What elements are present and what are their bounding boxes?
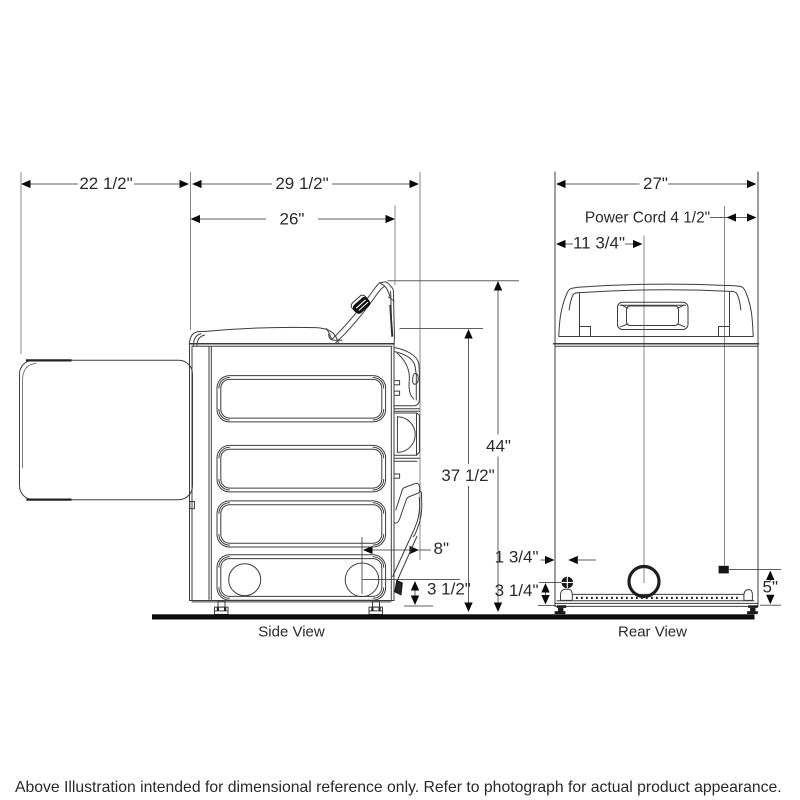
svg-text:1 3/4": 1 3/4": [495, 548, 539, 567]
svg-text:22 1/2": 22 1/2": [79, 174, 132, 193]
svg-text:Power Cord 4 1/2": Power Cord 4 1/2": [585, 210, 710, 227]
svg-text:Rear View: Rear View: [618, 624, 687, 641]
svg-text:8": 8": [434, 539, 450, 558]
svg-text:3 1/2": 3 1/2": [427, 580, 471, 599]
svg-text:37 1/2": 37 1/2": [441, 466, 494, 485]
svg-text:44": 44": [486, 437, 511, 456]
svg-text:Side View: Side View: [258, 624, 325, 641]
svg-text:29 1/2": 29 1/2": [275, 174, 328, 193]
svg-text:11 3/4": 11 3/4": [573, 234, 625, 253]
svg-text:Above Illustration intended fo: Above Illustration intended for dimensio…: [15, 779, 782, 796]
svg-text:3 1/4": 3 1/4": [495, 581, 539, 600]
svg-text:5": 5": [763, 578, 779, 597]
svg-text:27": 27": [643, 174, 668, 193]
svg-text:26": 26": [280, 210, 305, 229]
